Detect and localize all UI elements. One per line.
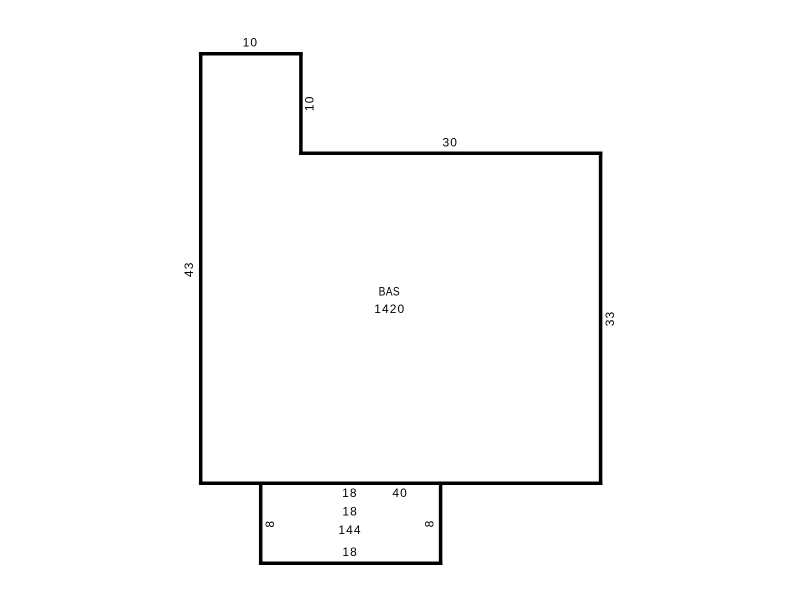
svg-text:18: 18 (342, 486, 358, 500)
svg-text:30: 30 (443, 136, 459, 150)
svg-text:33: 33 (603, 311, 617, 327)
svg-text:144: 144 (338, 523, 361, 537)
svg-text:10: 10 (243, 36, 259, 50)
svg-text:18: 18 (342, 505, 358, 519)
svg-text:43: 43 (182, 262, 196, 278)
svg-text:40: 40 (392, 486, 408, 500)
svg-text:8: 8 (263, 520, 277, 528)
svg-text:8: 8 (423, 520, 437, 528)
svg-text:BAS: BAS (379, 286, 400, 299)
svg-text:1420: 1420 (374, 302, 405, 316)
svg-text:18: 18 (342, 545, 358, 559)
svg-text:10: 10 (303, 96, 317, 112)
